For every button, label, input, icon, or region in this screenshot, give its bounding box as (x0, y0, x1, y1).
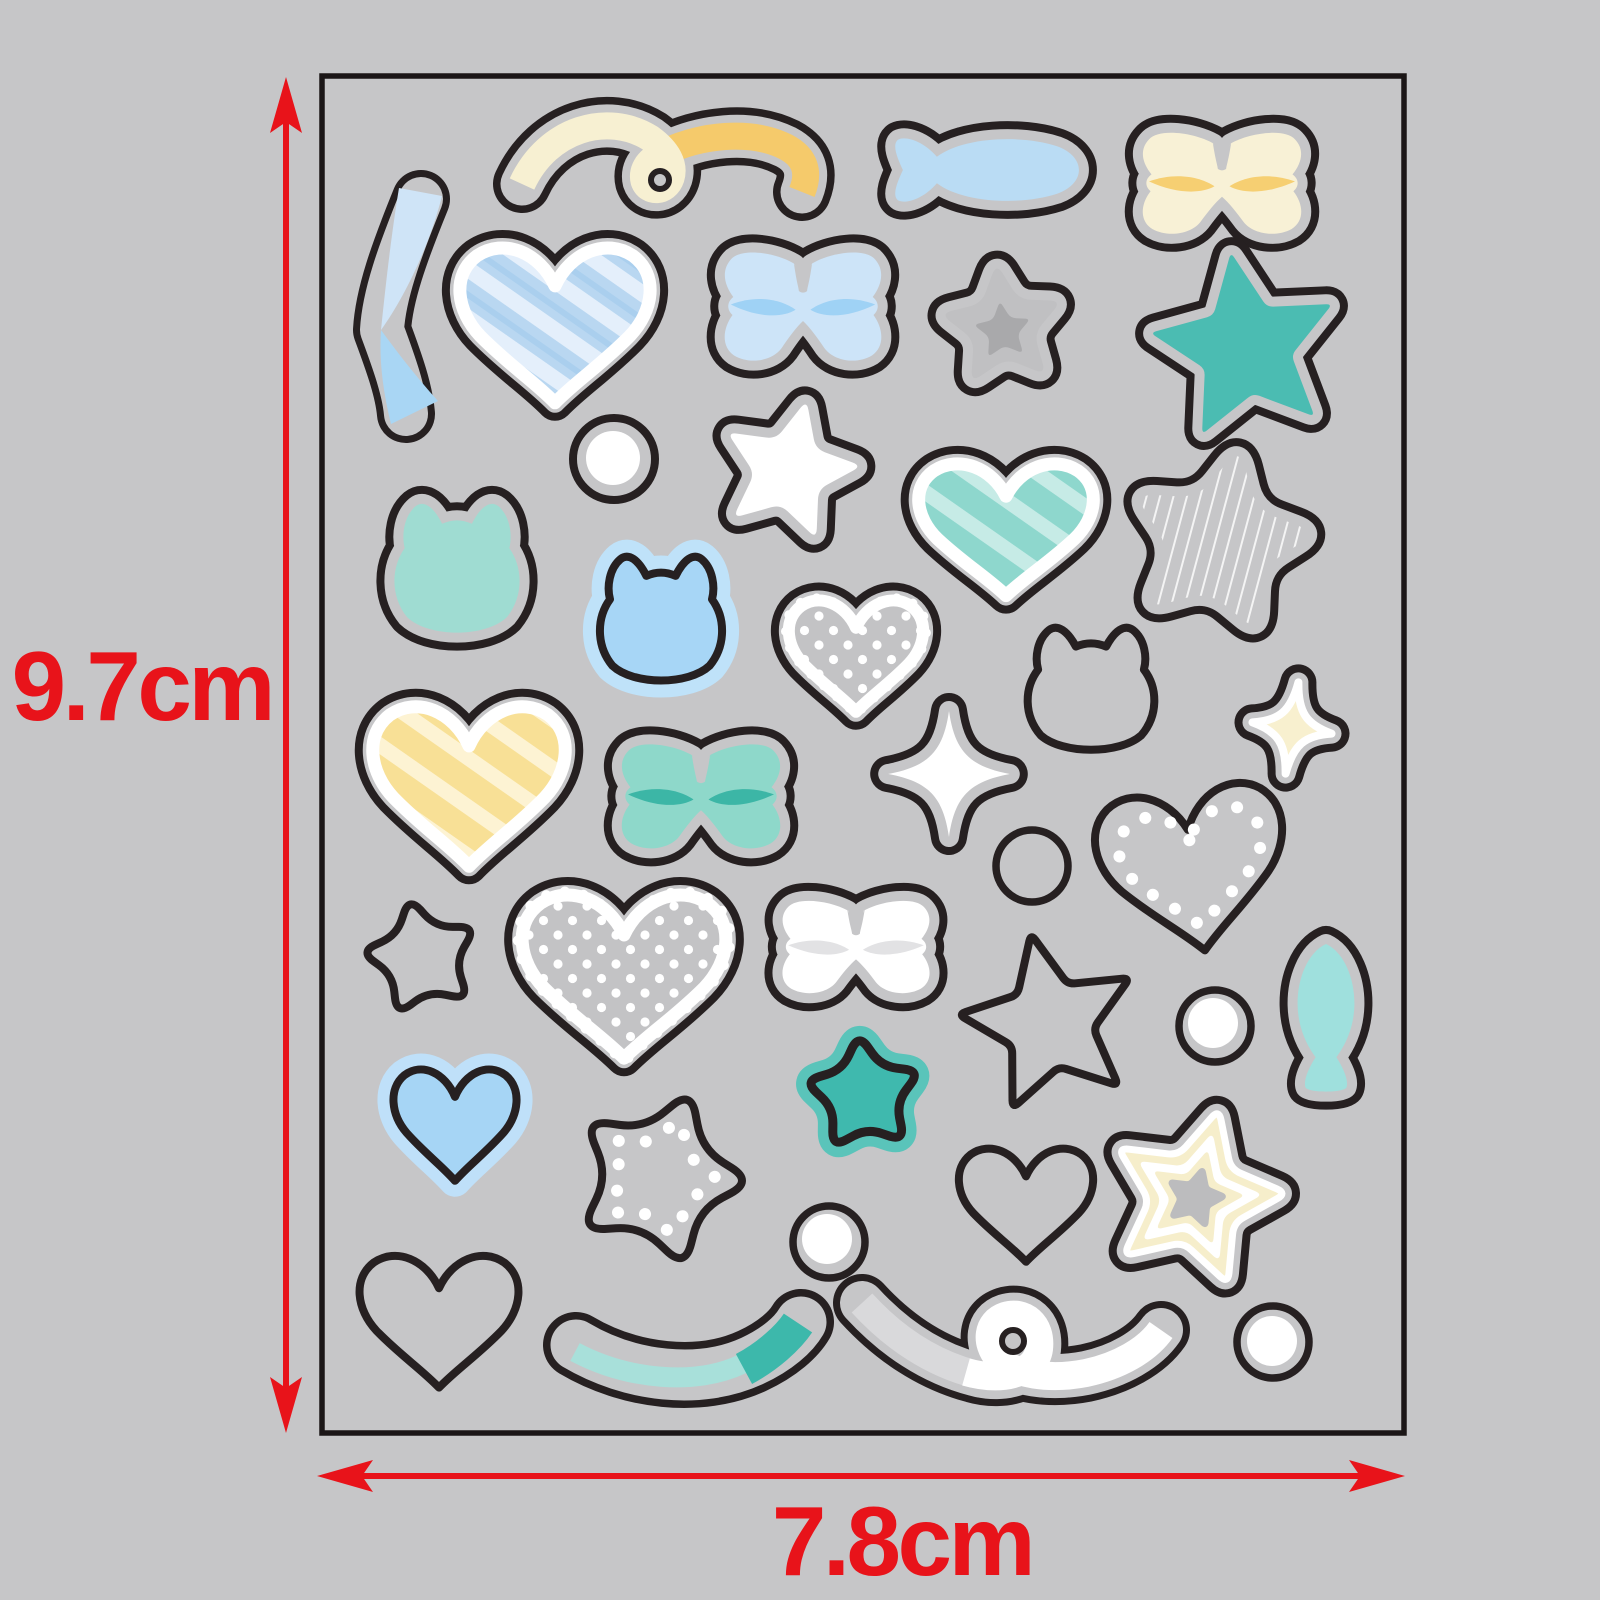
svg-text:7.8cm: 7.8cm (772, 1486, 1032, 1596)
svg-text:9.7cm: 9.7cm (12, 631, 272, 741)
